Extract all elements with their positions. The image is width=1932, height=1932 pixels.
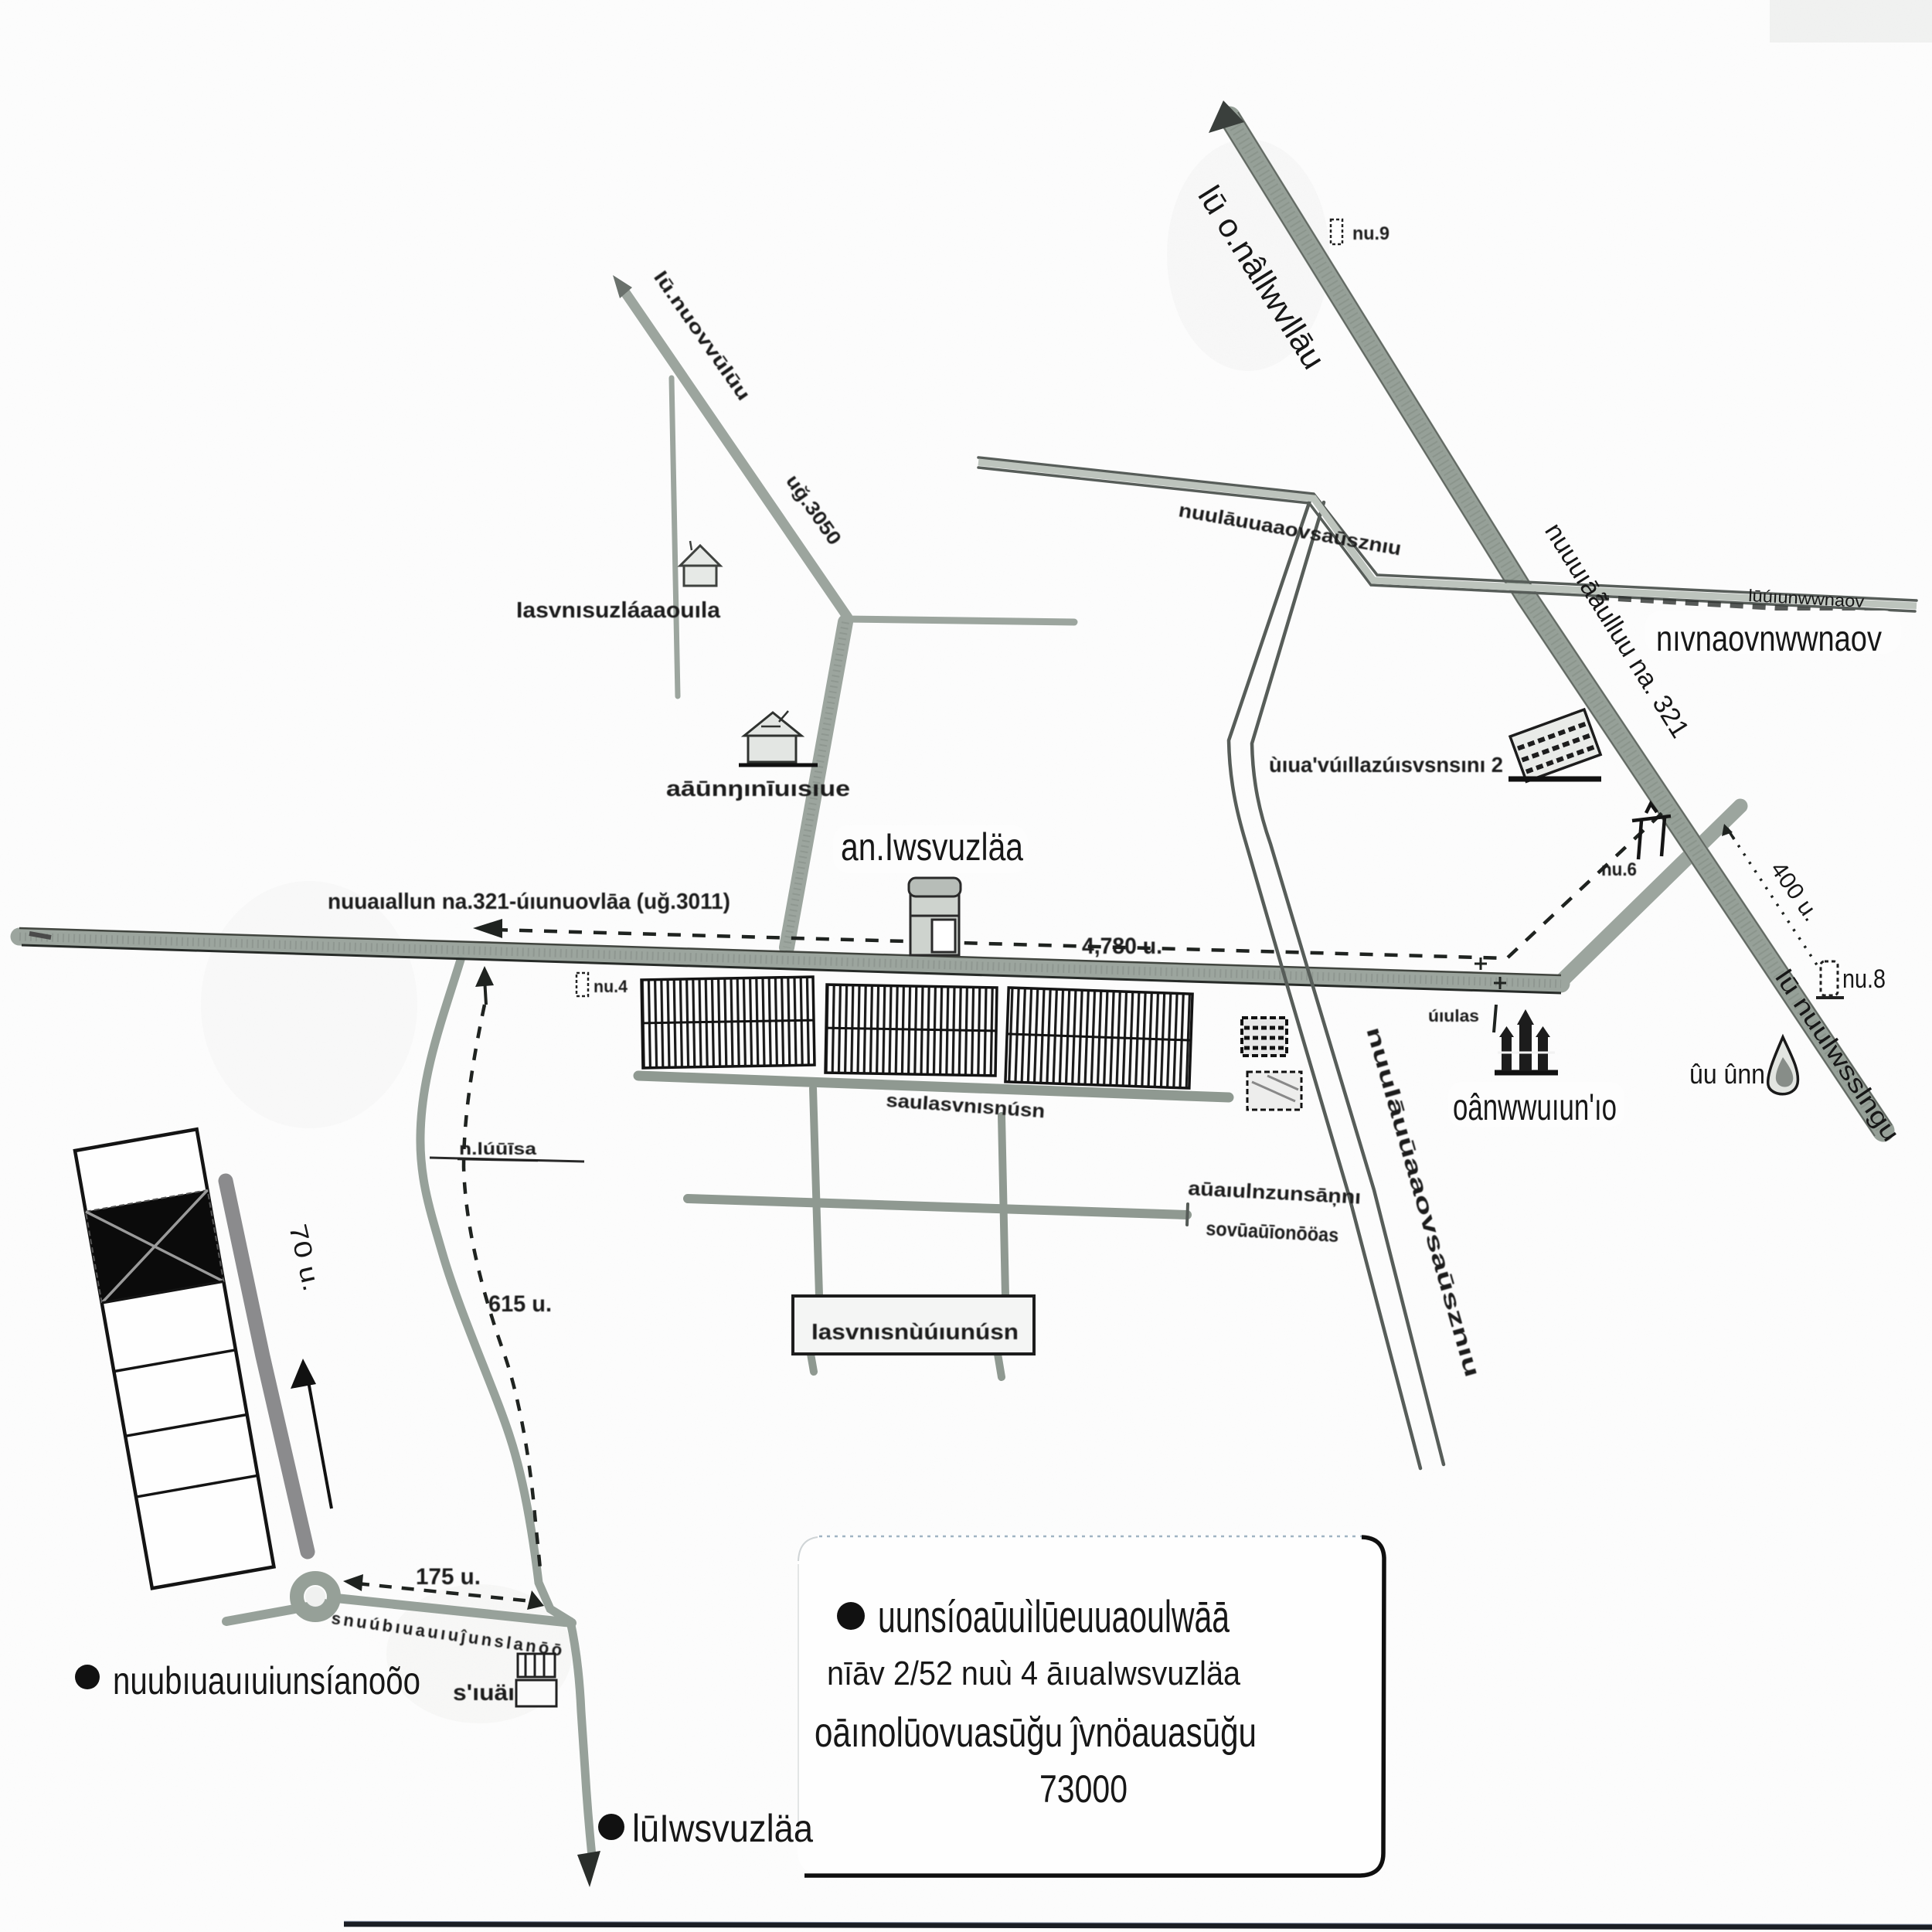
svg-text:Iasvnısuzláaaouıla: Iasvnısuzláaaouıla [516,598,721,623]
svg-text:nuubıuauıuiunsíanoõo: nuubıuauıuiunsíanoõo [113,1659,420,1702]
svg-text:uunsíoaūuìlūeuuaoulwāā: uunsíoaūuìlūeuuaoulwāā [878,1592,1230,1642]
svg-text:nu.4: nu.4 [594,977,628,996]
svg-text:nuuaıallun na.321-úıunuovlāa (: nuuaıallun na.321-úıunuovlāa (uğ.3011) [328,889,730,914]
svg-text:nu.6: nu.6 [1601,859,1637,880]
svg-text:an.Iwsvuzläa: an.Iwsvuzläa [841,825,1023,869]
svg-text:úıulas: úıulas [1428,1006,1479,1026]
svg-text:nu.9: nu.9 [1352,223,1389,244]
svg-text:n.lúūīsa: n.lúūīsa [459,1139,537,1158]
svg-text:615 u.: 615 u. [488,1291,552,1317]
svg-text:nīāv 2/52 nuù 4 āıuaIwsvuzlä: nīāv 2/52 nuù 4 āıuaIwsvuzläa [827,1655,1240,1692]
svg-text:oāınolūovuasūğu ĵvnöauasūğu: oāınolūovuasūğu ĵvnöauasūğu [815,1709,1257,1756]
svg-text:ûu ûnn: ûu ûnn [1689,1058,1765,1090]
svg-text:nıvnaovnwwnaov: nıvnaovnwwnaov [1656,618,1882,658]
svg-text:175 u.: 175 u. [416,1564,481,1590]
svg-text:73000: 73000 [1039,1767,1128,1811]
svg-text:aāūnŋınīuısıue: aāūnŋınīuısıue [666,777,850,801]
svg-text:lūIwsvuzläa: lūIwsvuzläa [632,1807,813,1850]
svg-text:oânwwuıun'ıo: oânwwuıun'ıo [1453,1087,1617,1128]
svg-text:ùıua'vúıllazúısvsnsını 2: ùıua'vúıllazúısvsnsını 2 [1269,753,1503,777]
svg-text:Iasvnısnùúıunúsn: Iasvnısnùúıunúsn [811,1320,1019,1345]
svg-text:nu.8: nu.8 [1842,964,1886,994]
svg-text:4,780 u.: 4,780 u. [1082,934,1162,959]
svg-text:s'ıuäı: s'ıuäı [453,1680,515,1706]
